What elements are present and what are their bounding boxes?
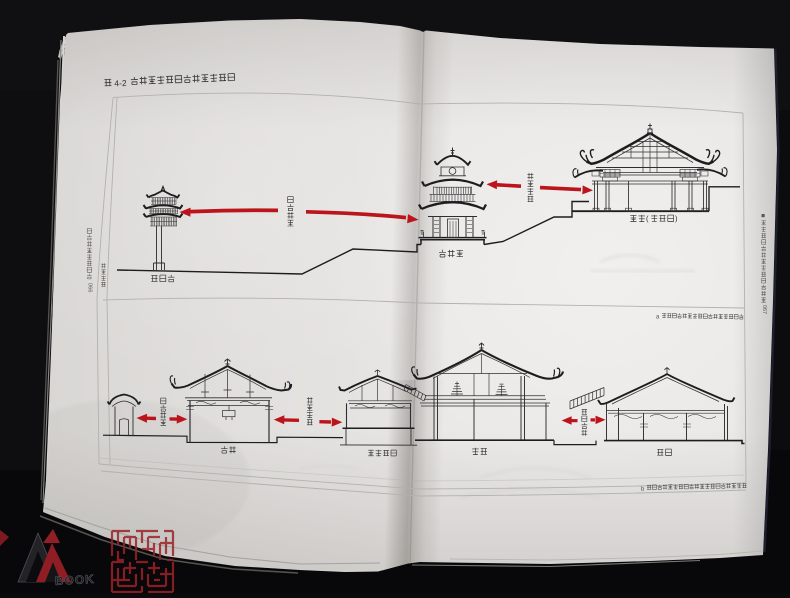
svg-text:066: 066 [87, 283, 93, 292]
svg-text:067: 067 [761, 305, 767, 314]
svg-text:BOOK: BOOK [54, 572, 95, 588]
svg-text:4-2: 4-2 [114, 78, 127, 88]
